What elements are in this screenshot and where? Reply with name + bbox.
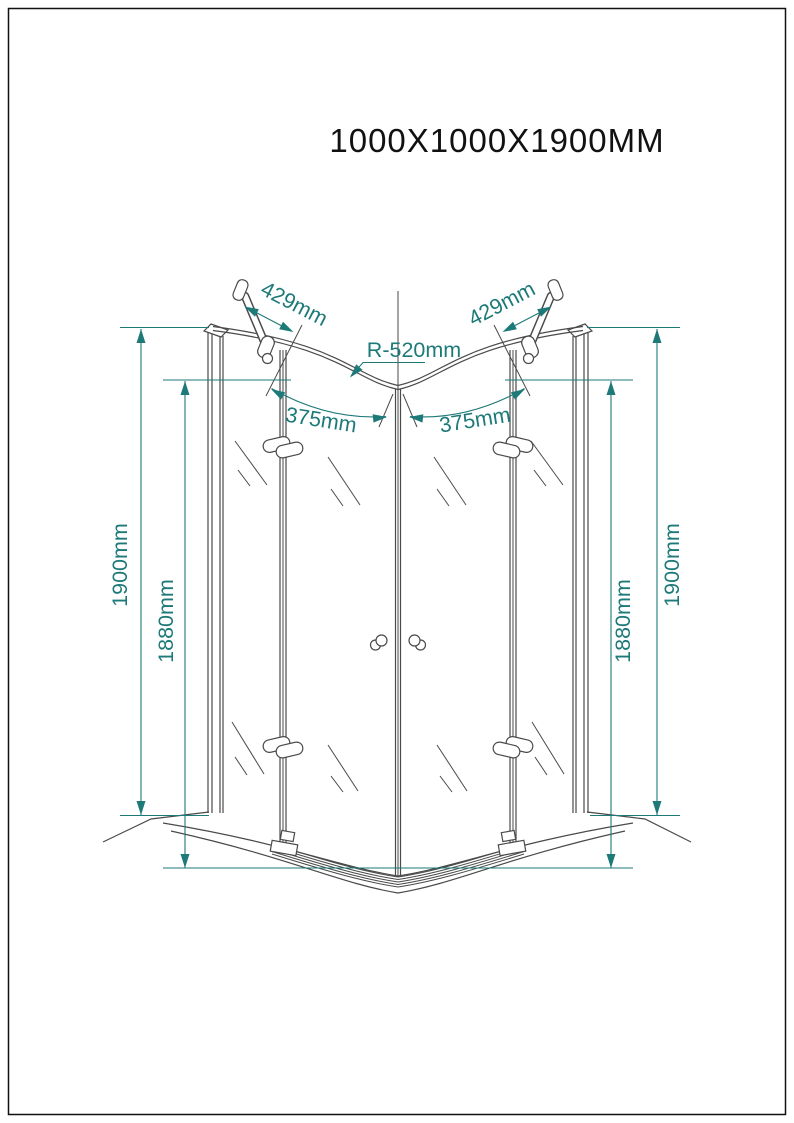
dimension-total-height-right: 1900mm [653, 329, 685, 815]
hinge-top-left [262, 435, 304, 459]
left-wall-profile [204, 324, 228, 813]
label-door-width-right: 375mm [438, 403, 513, 438]
hinge-bottom-left [262, 735, 304, 759]
door-knob-right [409, 635, 426, 650]
center-meeting-stiles [396, 389, 401, 877]
door-knob-left [371, 635, 388, 650]
label-door-width-left: 375mm [284, 403, 359, 438]
label-radius: R-520mm [367, 338, 461, 362]
label-glass-height-left: 1880mm [154, 579, 178, 663]
dimension-door-width-left: 375mm [269, 385, 388, 437]
dimension-door-width-right: 375mm [409, 385, 528, 437]
label-support-bar-right: 429mm [464, 277, 539, 331]
dimension-glass-height-right: 1880mm [607, 381, 636, 868]
dimension-total-height-left: 1900mm [108, 329, 146, 815]
label-glass-height-right: 1880mm [611, 579, 635, 663]
hinge-bottom-right [492, 735, 534, 759]
door-bottom-bracket-left [270, 830, 298, 855]
label-total-height-left: 1900mm [108, 523, 132, 607]
dimension-radius: R-520mm [347, 338, 461, 380]
drawing-title: 1000X1000X1900MM [329, 122, 664, 159]
label-support-bar-left: 429mm [257, 277, 332, 331]
shower-tray [103, 812, 691, 893]
right-wall-profile [568, 324, 592, 813]
dimension-glass-height-left: 1880mm [154, 381, 190, 868]
drawing-sheet: 1000X1000X1900MM [0, 0, 794, 1123]
shower-enclosure-diagram: 1000X1000X1900MM [0, 0, 794, 1123]
door-bottom-bracket-right [498, 830, 526, 855]
label-total-height-right: 1900mm [660, 523, 684, 607]
hinge-top-right [492, 435, 534, 459]
